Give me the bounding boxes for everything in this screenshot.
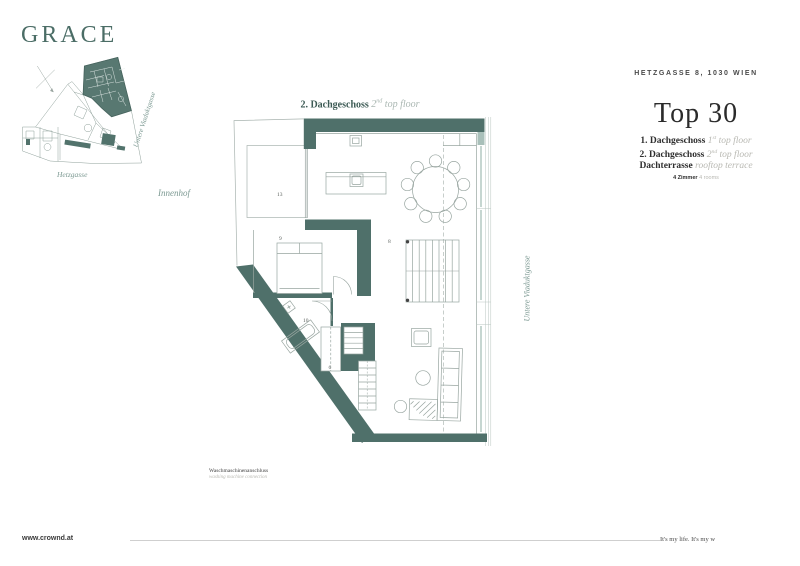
svg-text:6: 6 (329, 365, 332, 371)
svg-text:13: 13 (277, 192, 283, 198)
svg-text:9: 9 (279, 236, 282, 242)
svg-text:10: 10 (303, 318, 309, 324)
svg-text:8: 8 (388, 239, 391, 245)
